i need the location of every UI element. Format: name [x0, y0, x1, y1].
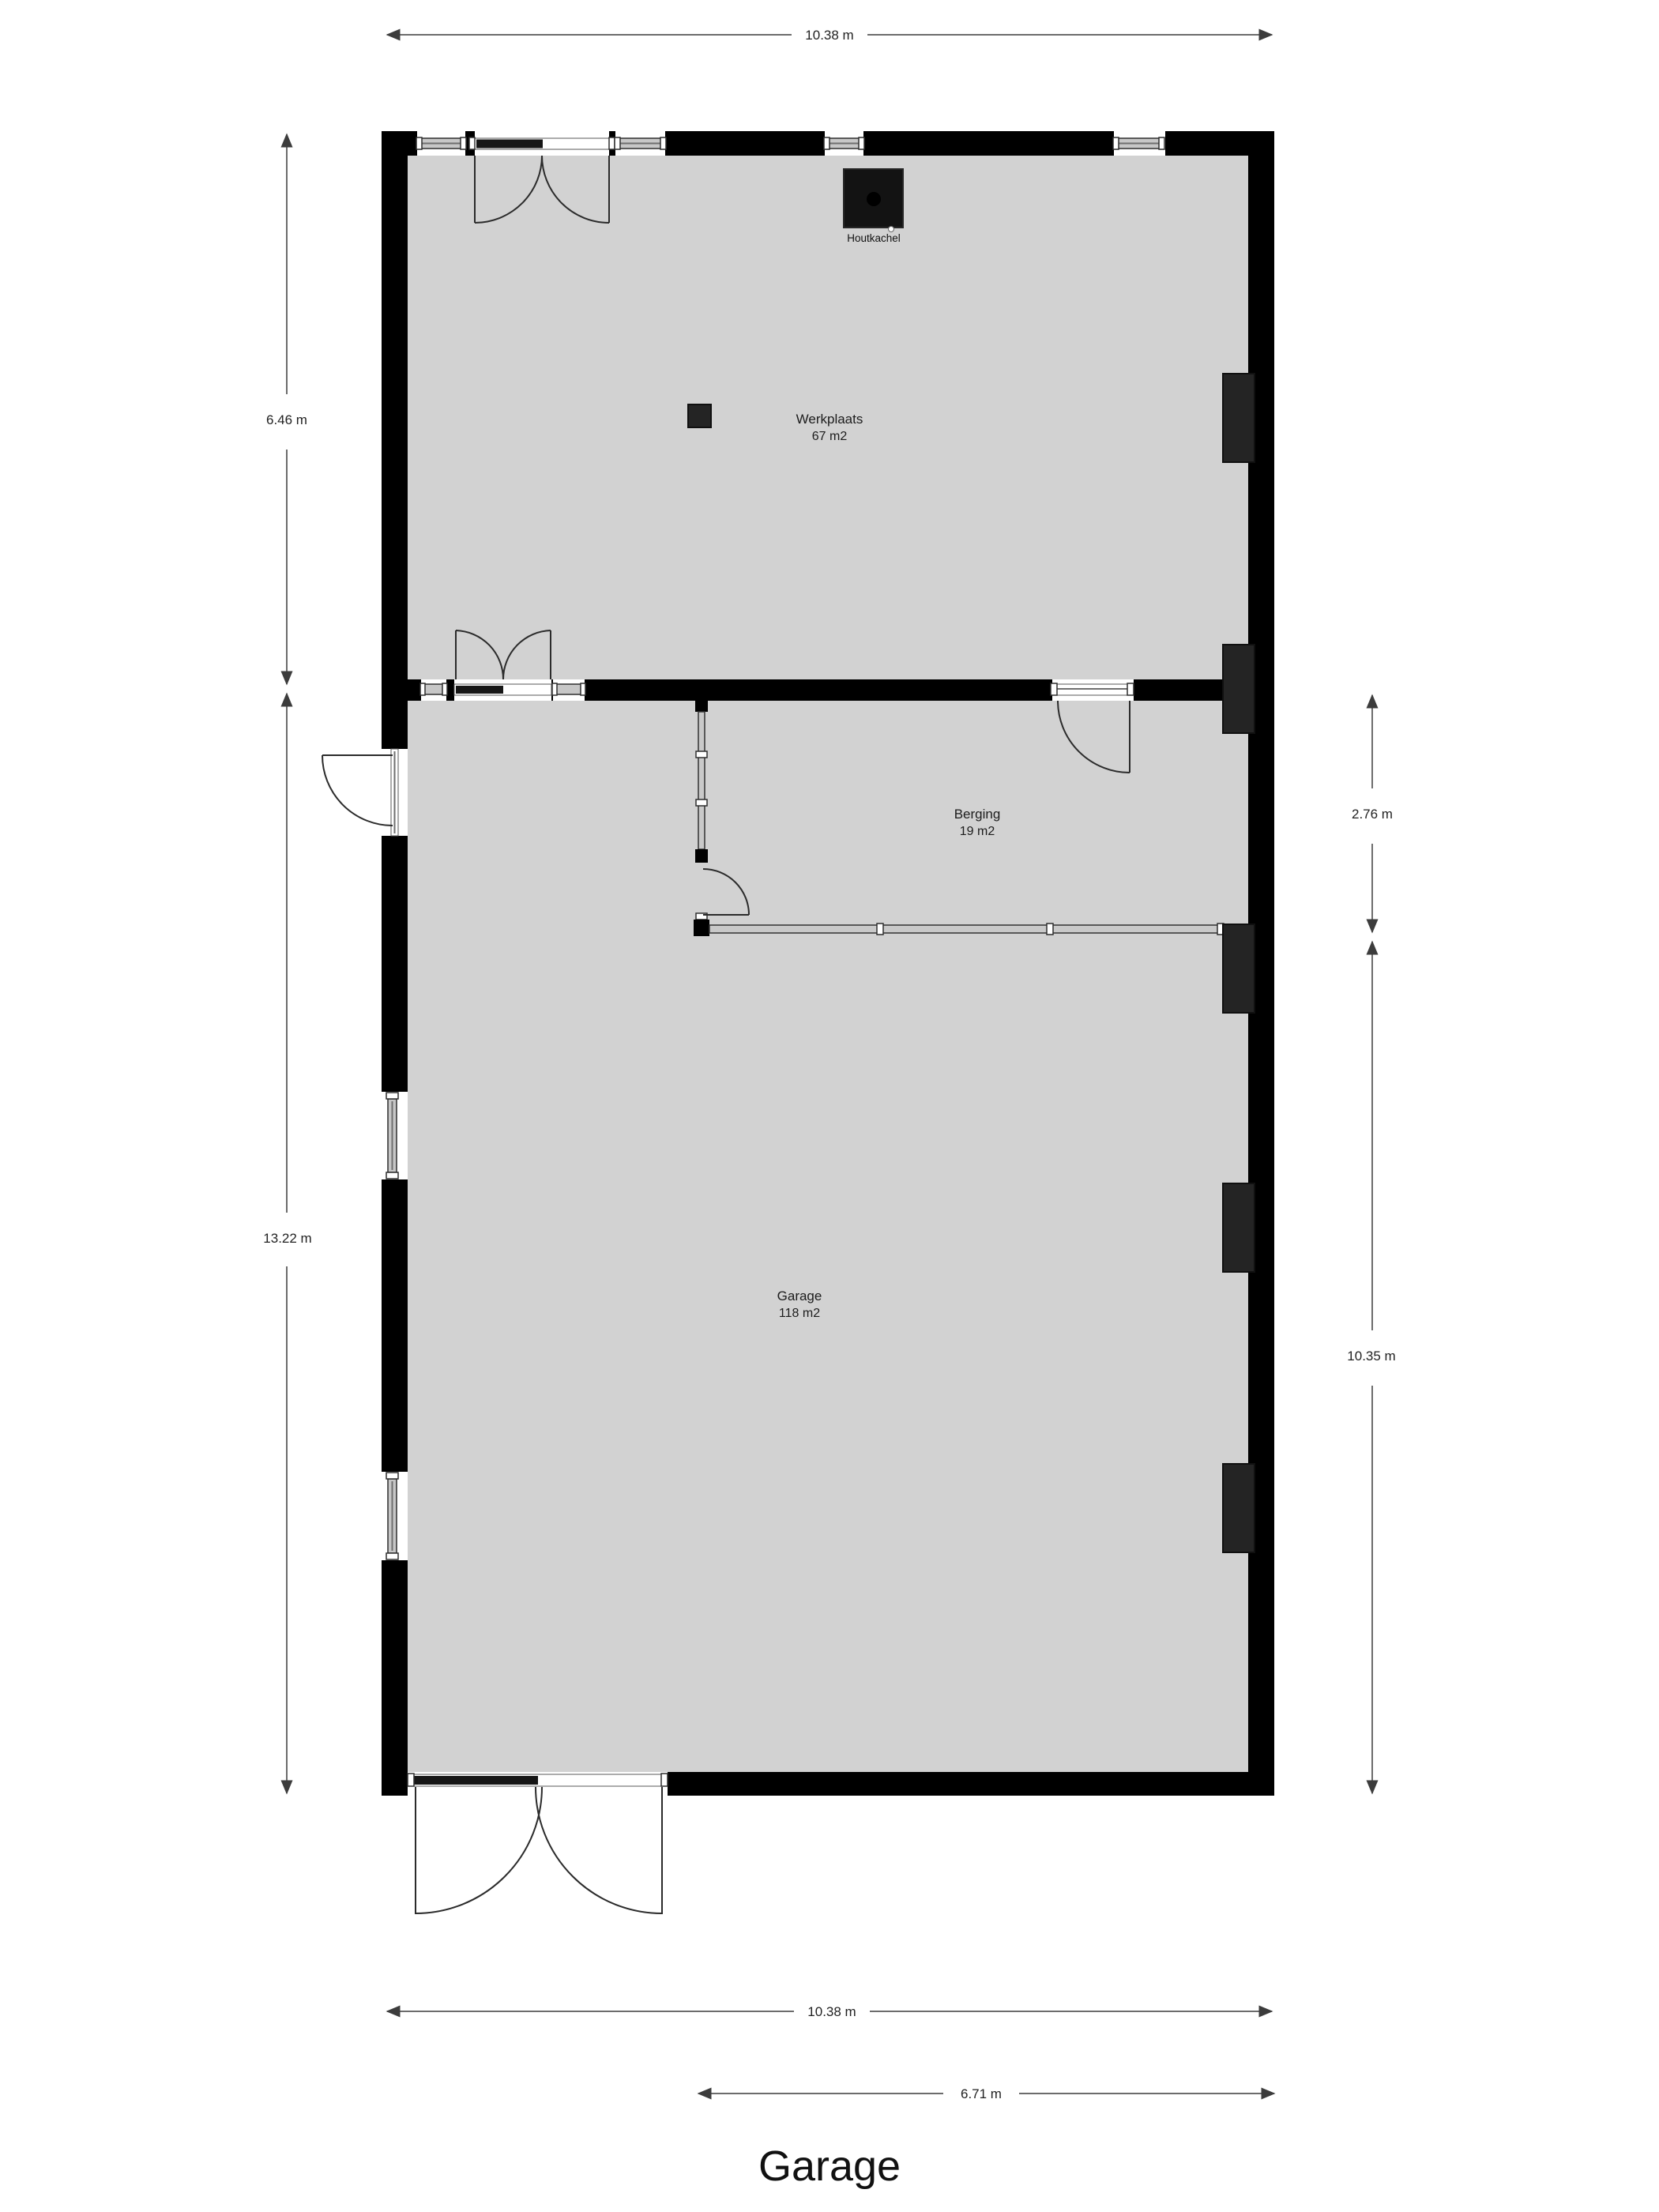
svg-text:10.35 m: 10.35 m — [1347, 1349, 1395, 1364]
svg-text:2.76 m: 2.76 m — [1352, 807, 1393, 822]
partition-wall-horizontal — [709, 925, 1219, 933]
floor-plan: Houtkachel Werkplaats 67 m2 Berging 19 m… — [322, 131, 1274, 1914]
column — [1223, 374, 1255, 462]
svg-text:Berging: Berging — [954, 807, 1001, 822]
dimension-bottom-partial: 6.71 m — [698, 2086, 1274, 2101]
partition-corner-post — [694, 920, 709, 936]
plan-title: Garage — [758, 2142, 901, 2190]
dimension-left-lower: 13.22 m — [263, 694, 311, 1793]
stove-label: Houtkachel — [847, 232, 901, 244]
partition-post — [695, 701, 708, 712]
svg-text:6.46 m: 6.46 m — [266, 412, 307, 427]
column — [1223, 924, 1255, 1013]
svg-text:67 m2: 67 m2 — [812, 430, 848, 443]
stove-knob — [889, 227, 894, 232]
left-exterior-door — [322, 749, 408, 836]
stove-burner — [867, 192, 881, 206]
dimension-bottom-width: 10.38 m — [387, 2004, 1272, 2019]
dimension-right-lower: 10.35 m — [1347, 942, 1395, 1793]
werkplaats-column — [688, 404, 711, 427]
column — [1223, 1183, 1255, 1272]
partition-post — [695, 849, 708, 863]
window — [382, 1092, 408, 1179]
svg-text:10.38 m: 10.38 m — [805, 28, 853, 43]
svg-text:6.71 m: 6.71 m — [961, 2086, 1002, 2101]
partition-wall-vertical — [698, 712, 705, 849]
window — [615, 131, 666, 156]
door-swing-arc — [416, 1787, 542, 1913]
window — [552, 679, 585, 701]
floor-plan-canvas: Houtkachel Werkplaats 67 m2 Berging 19 m… — [0, 0, 1659, 2212]
window — [420, 679, 447, 701]
svg-text:19 m2: 19 m2 — [960, 825, 995, 838]
dimension-right-upper: 2.76 m — [1352, 695, 1393, 932]
window — [382, 1472, 408, 1560]
window — [824, 131, 864, 156]
svg-text:118 m2: 118 m2 — [779, 1307, 820, 1320]
svg-text:13.22 m: 13.22 m — [263, 1231, 311, 1246]
column — [1223, 1464, 1255, 1552]
dimension-left-upper: 6.46 m — [266, 134, 307, 684]
floor-area — [408, 156, 1248, 1772]
column — [1223, 645, 1255, 733]
svg-text:10.38 m: 10.38 m — [807, 2004, 856, 2019]
dimension-top-width: 10.38 m — [387, 28, 1272, 43]
window — [416, 131, 466, 156]
svg-text:Werkplaats: Werkplaats — [796, 412, 863, 427]
window — [1113, 131, 1165, 156]
wood-stove: Houtkachel — [844, 169, 903, 244]
svg-text:Garage: Garage — [777, 1288, 822, 1303]
door-swing-arc — [536, 1787, 662, 1913]
garage-double-door — [408, 1772, 668, 1914]
